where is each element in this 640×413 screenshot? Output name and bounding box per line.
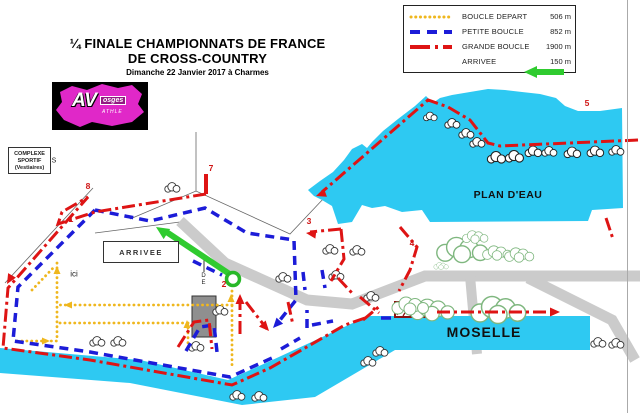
s-marker: S — [52, 158, 57, 165]
legend-label: GRANDE BOUCLE — [454, 42, 537, 51]
checkpoint-5: 5 — [585, 98, 590, 108]
checkpoint-7: 7 — [209, 163, 214, 173]
logo-blob — [52, 82, 148, 130]
checkpoint-3: 3 — [307, 216, 312, 226]
start-finish-ring — [227, 273, 240, 286]
title-block: ¼ FINALE CHAMPIONNATS DE FRANCE DE CROSS… — [30, 36, 365, 77]
legend-row-petite-boucle: PETITE BOUCLE 852 m — [408, 24, 571, 39]
event-date: Dimanche 22 Janvier 2017 à Charmes — [30, 68, 365, 77]
cross-country-course-map: ¼ FINALE CHAMPIONNATS DE FRANCE DE CROSS… — [0, 0, 640, 413]
legend-distance: 506 m — [537, 12, 571, 21]
e-letter: E — [197, 280, 210, 287]
checkpoint-8: 8 — [86, 181, 91, 191]
logo-text-box: osges — [100, 96, 126, 105]
complexe-line3: (Vestiaires) — [9, 165, 50, 172]
dashed-line-icon — [408, 27, 454, 37]
legend-label: BOUCLE DEPART — [454, 12, 537, 21]
checkpoint-4: 4 — [410, 238, 415, 248]
complexe-line1: COMPLEXE — [9, 151, 50, 158]
ici-label: ici — [70, 270, 78, 279]
plan-deau-label: PLAN D'EAU — [474, 189, 543, 201]
legend-row-grande-boucle: GRANDE BOUCLE 1900 m — [408, 39, 571, 54]
checkpoint-1: 1 — [69, 214, 74, 224]
page-subtitle: DE CROSS-COUNTRY — [30, 51, 365, 66]
page-title: ¼ FINALE CHAMPIONNATS DE FRANCE — [30, 36, 365, 51]
arrivee-label: ARRIVEE — [119, 248, 163, 257]
legend-arrivee-arrow-icon — [518, 64, 570, 80]
arrivee-box: ARRIVEE — [103, 241, 179, 263]
legend-distance: 852 m — [537, 27, 571, 36]
club-logo: AV osges ATHLE — [52, 82, 148, 130]
checkpoint-2: 2 — [222, 279, 227, 289]
depart-building — [192, 296, 216, 337]
legend-label: PETITE BOUCLE — [454, 27, 537, 36]
d-letter: D — [197, 273, 210, 280]
moselle-label: MOSELLE — [447, 324, 522, 340]
water-bodies — [0, 89, 623, 405]
dotted-line-icon — [408, 12, 454, 22]
dashdot-line-icon — [408, 42, 454, 52]
legend-row-boucle-depart: BOUCLE DEPART 506 m — [408, 9, 571, 24]
legend-distance: 1900 m — [537, 42, 571, 51]
complexe-sportif-box: COMPLEXE SPORTIF (Vestiaires) — [8, 147, 51, 174]
logo-text-big: AV — [72, 90, 97, 112]
complexe-line2: SPORTIF — [9, 158, 50, 165]
depart-de-label: D E — [197, 273, 210, 287]
blank-icon — [408, 57, 454, 67]
legend-box: BOUCLE DEPART 506 m PETITE BOUCLE 852 m … — [403, 5, 576, 73]
logo-text-sub: ATHLE — [102, 109, 123, 115]
